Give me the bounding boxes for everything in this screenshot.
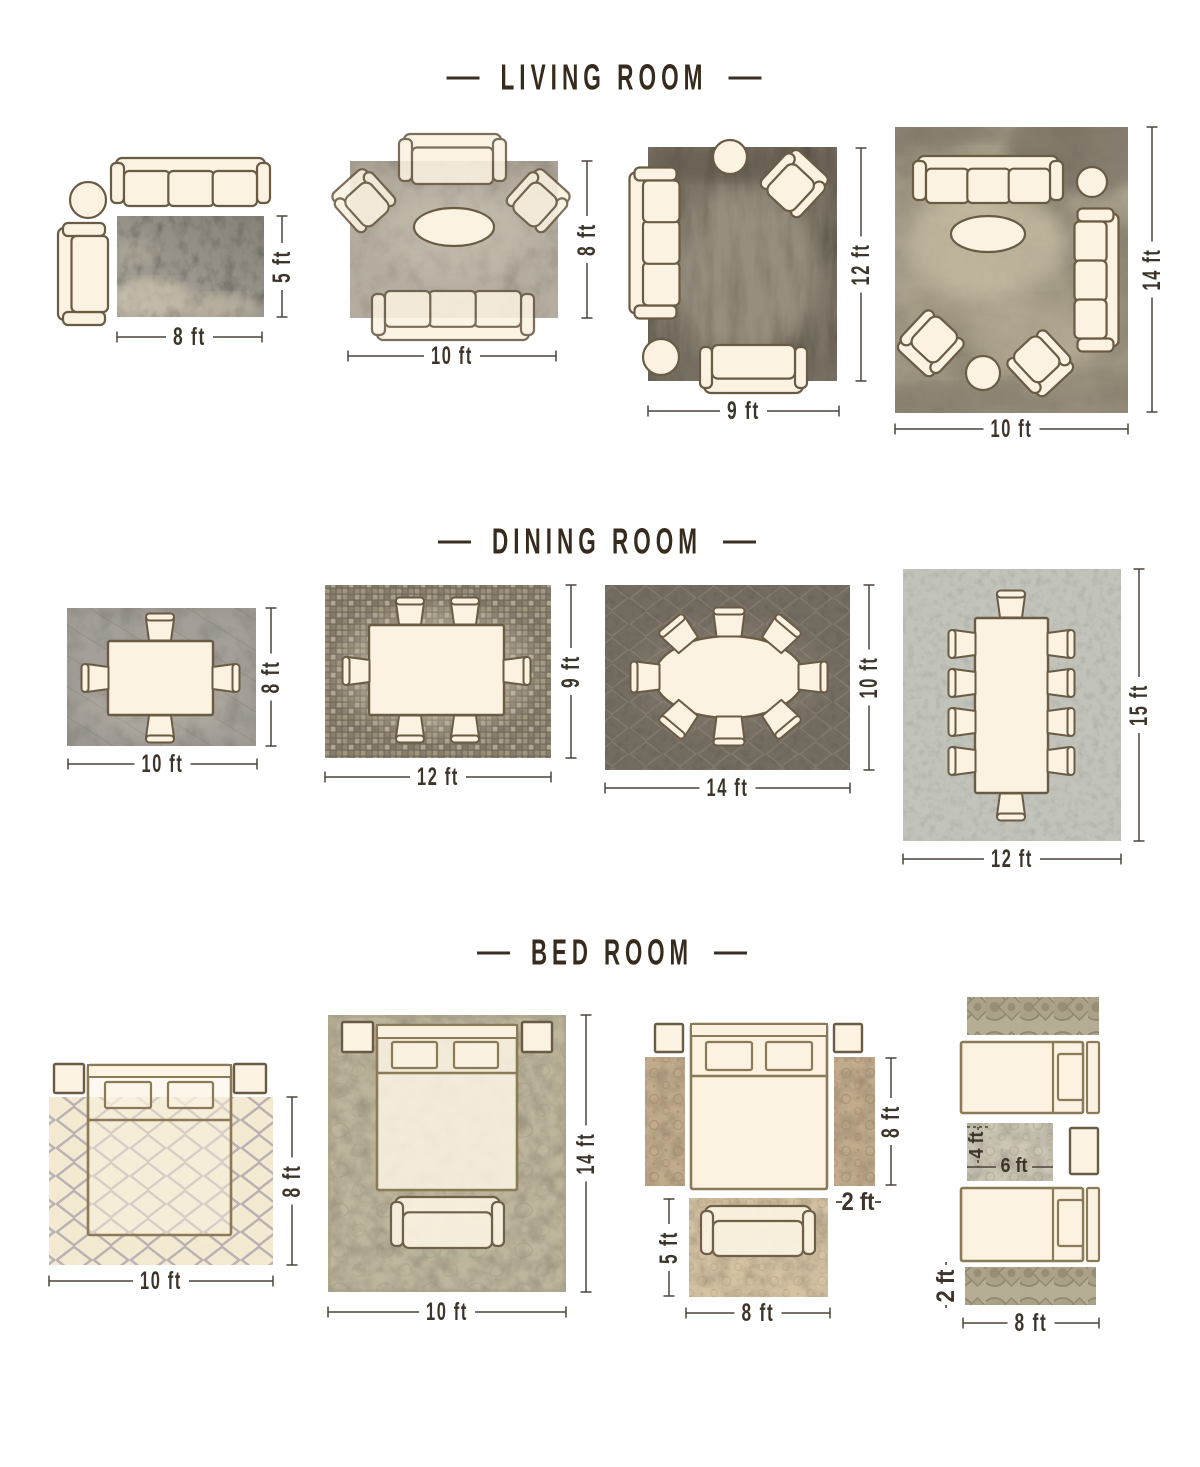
svg-text:DINING ROOM: DINING ROOM <box>492 521 702 562</box>
svg-text:5 ft: 5 ft <box>655 1231 683 1264</box>
svg-text:10 ft: 10 ft <box>991 415 1033 443</box>
svg-text:14 ft: 14 ft <box>572 1133 600 1175</box>
svg-text:6 ft: 6 ft <box>1001 1155 1028 1177</box>
svg-text:8 ft: 8 ft <box>278 1165 306 1198</box>
svg-text:4 ft: 4 ft <box>966 1131 988 1158</box>
svg-text:10 ft: 10 ft <box>426 1298 468 1326</box>
svg-text:9 ft: 9 ft <box>727 397 760 425</box>
svg-text:8 ft: 8 ft <box>1015 1309 1048 1337</box>
svg-text:12 ft: 12 ft <box>991 845 1033 873</box>
svg-text:10 ft: 10 ft <box>855 657 883 699</box>
svg-text:8 ft: 8 ft <box>257 661 285 694</box>
svg-text:8 ft: 8 ft <box>173 323 206 351</box>
svg-text:10 ft: 10 ft <box>142 750 184 778</box>
svg-text:12 ft: 12 ft <box>847 244 875 286</box>
svg-text:8 ft: 8 ft <box>573 223 601 256</box>
svg-text:10 ft: 10 ft <box>431 342 473 370</box>
svg-text:15 ft: 15 ft <box>1125 684 1153 726</box>
svg-text:14 ft: 14 ft <box>1138 249 1166 291</box>
svg-text:LIVING ROOM: LIVING ROOM <box>501 57 708 98</box>
svg-text:8 ft: 8 ft <box>877 1105 905 1138</box>
svg-text:9 ft: 9 ft <box>557 655 585 688</box>
svg-text:BED ROOM: BED ROOM <box>531 932 693 973</box>
svg-text:10 ft: 10 ft <box>140 1267 182 1295</box>
svg-text:2 ft: 2 ft <box>842 1188 876 1216</box>
svg-text:5 ft: 5 ft <box>268 250 296 283</box>
svg-text:2 ft: 2 ft <box>932 1269 960 1303</box>
svg-text:12 ft: 12 ft <box>417 763 459 791</box>
svg-text:8 ft: 8 ft <box>742 1299 775 1327</box>
svg-text:14 ft: 14 ft <box>707 774 749 802</box>
